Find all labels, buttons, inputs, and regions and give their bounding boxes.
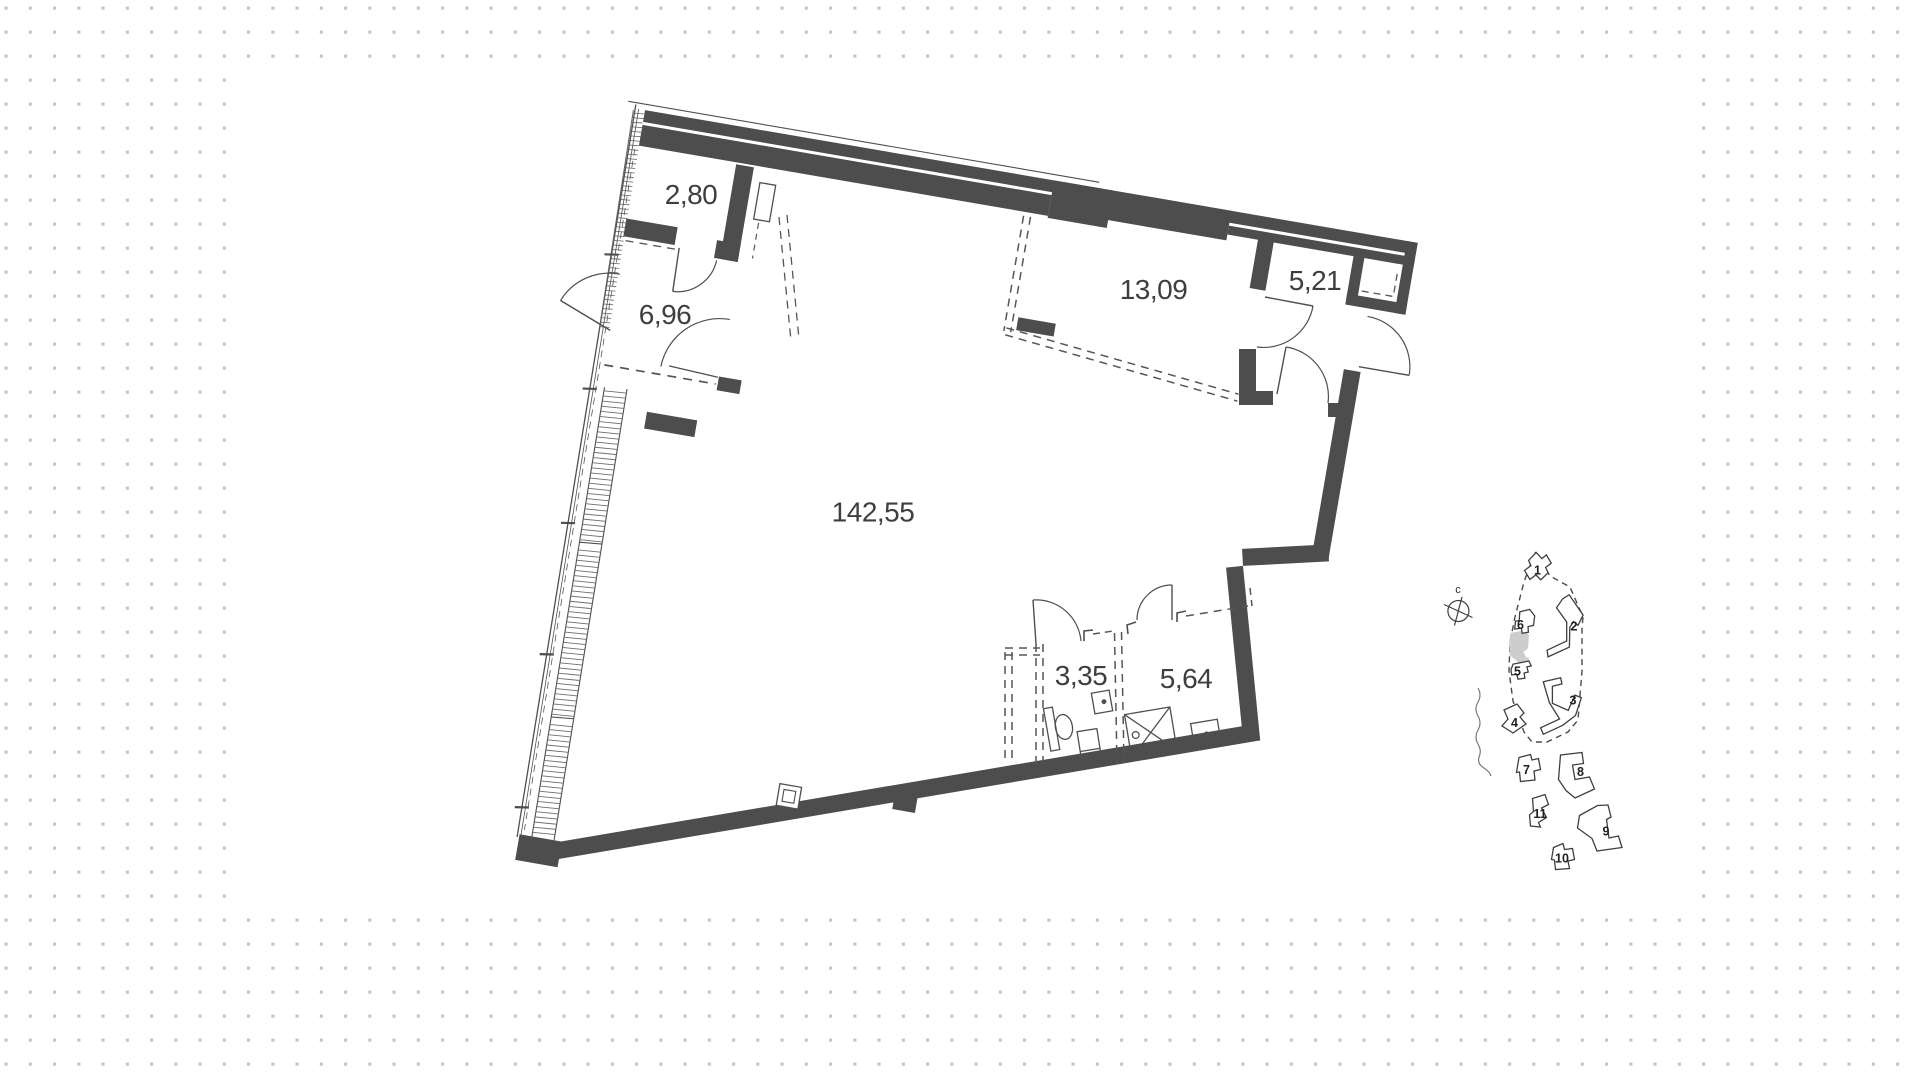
svg-text:142,55: 142,55 — [832, 497, 915, 528]
svg-text:3,35: 3,35 — [1055, 660, 1108, 691]
svg-text:5: 5 — [1514, 665, 1521, 679]
svg-text:11: 11 — [1533, 807, 1546, 821]
svg-text:4: 4 — [1511, 716, 1518, 730]
svg-text:9: 9 — [1603, 825, 1610, 839]
svg-text:5,21: 5,21 — [1289, 265, 1342, 296]
svg-text:5,64: 5,64 — [1160, 663, 1213, 694]
svg-text:6,96: 6,96 — [639, 299, 692, 330]
svg-text:7: 7 — [1523, 763, 1530, 777]
svg-text:2: 2 — [1571, 620, 1578, 634]
svg-text:8: 8 — [1577, 765, 1584, 779]
svg-text:с: с — [1455, 584, 1461, 596]
svg-text:13,09: 13,09 — [1120, 274, 1188, 305]
svg-text:10: 10 — [1555, 852, 1569, 866]
svg-text:3: 3 — [1570, 694, 1577, 708]
svg-text:2,80: 2,80 — [665, 179, 718, 210]
svg-text:1: 1 — [1534, 564, 1541, 578]
svg-text:6: 6 — [1517, 618, 1524, 632]
